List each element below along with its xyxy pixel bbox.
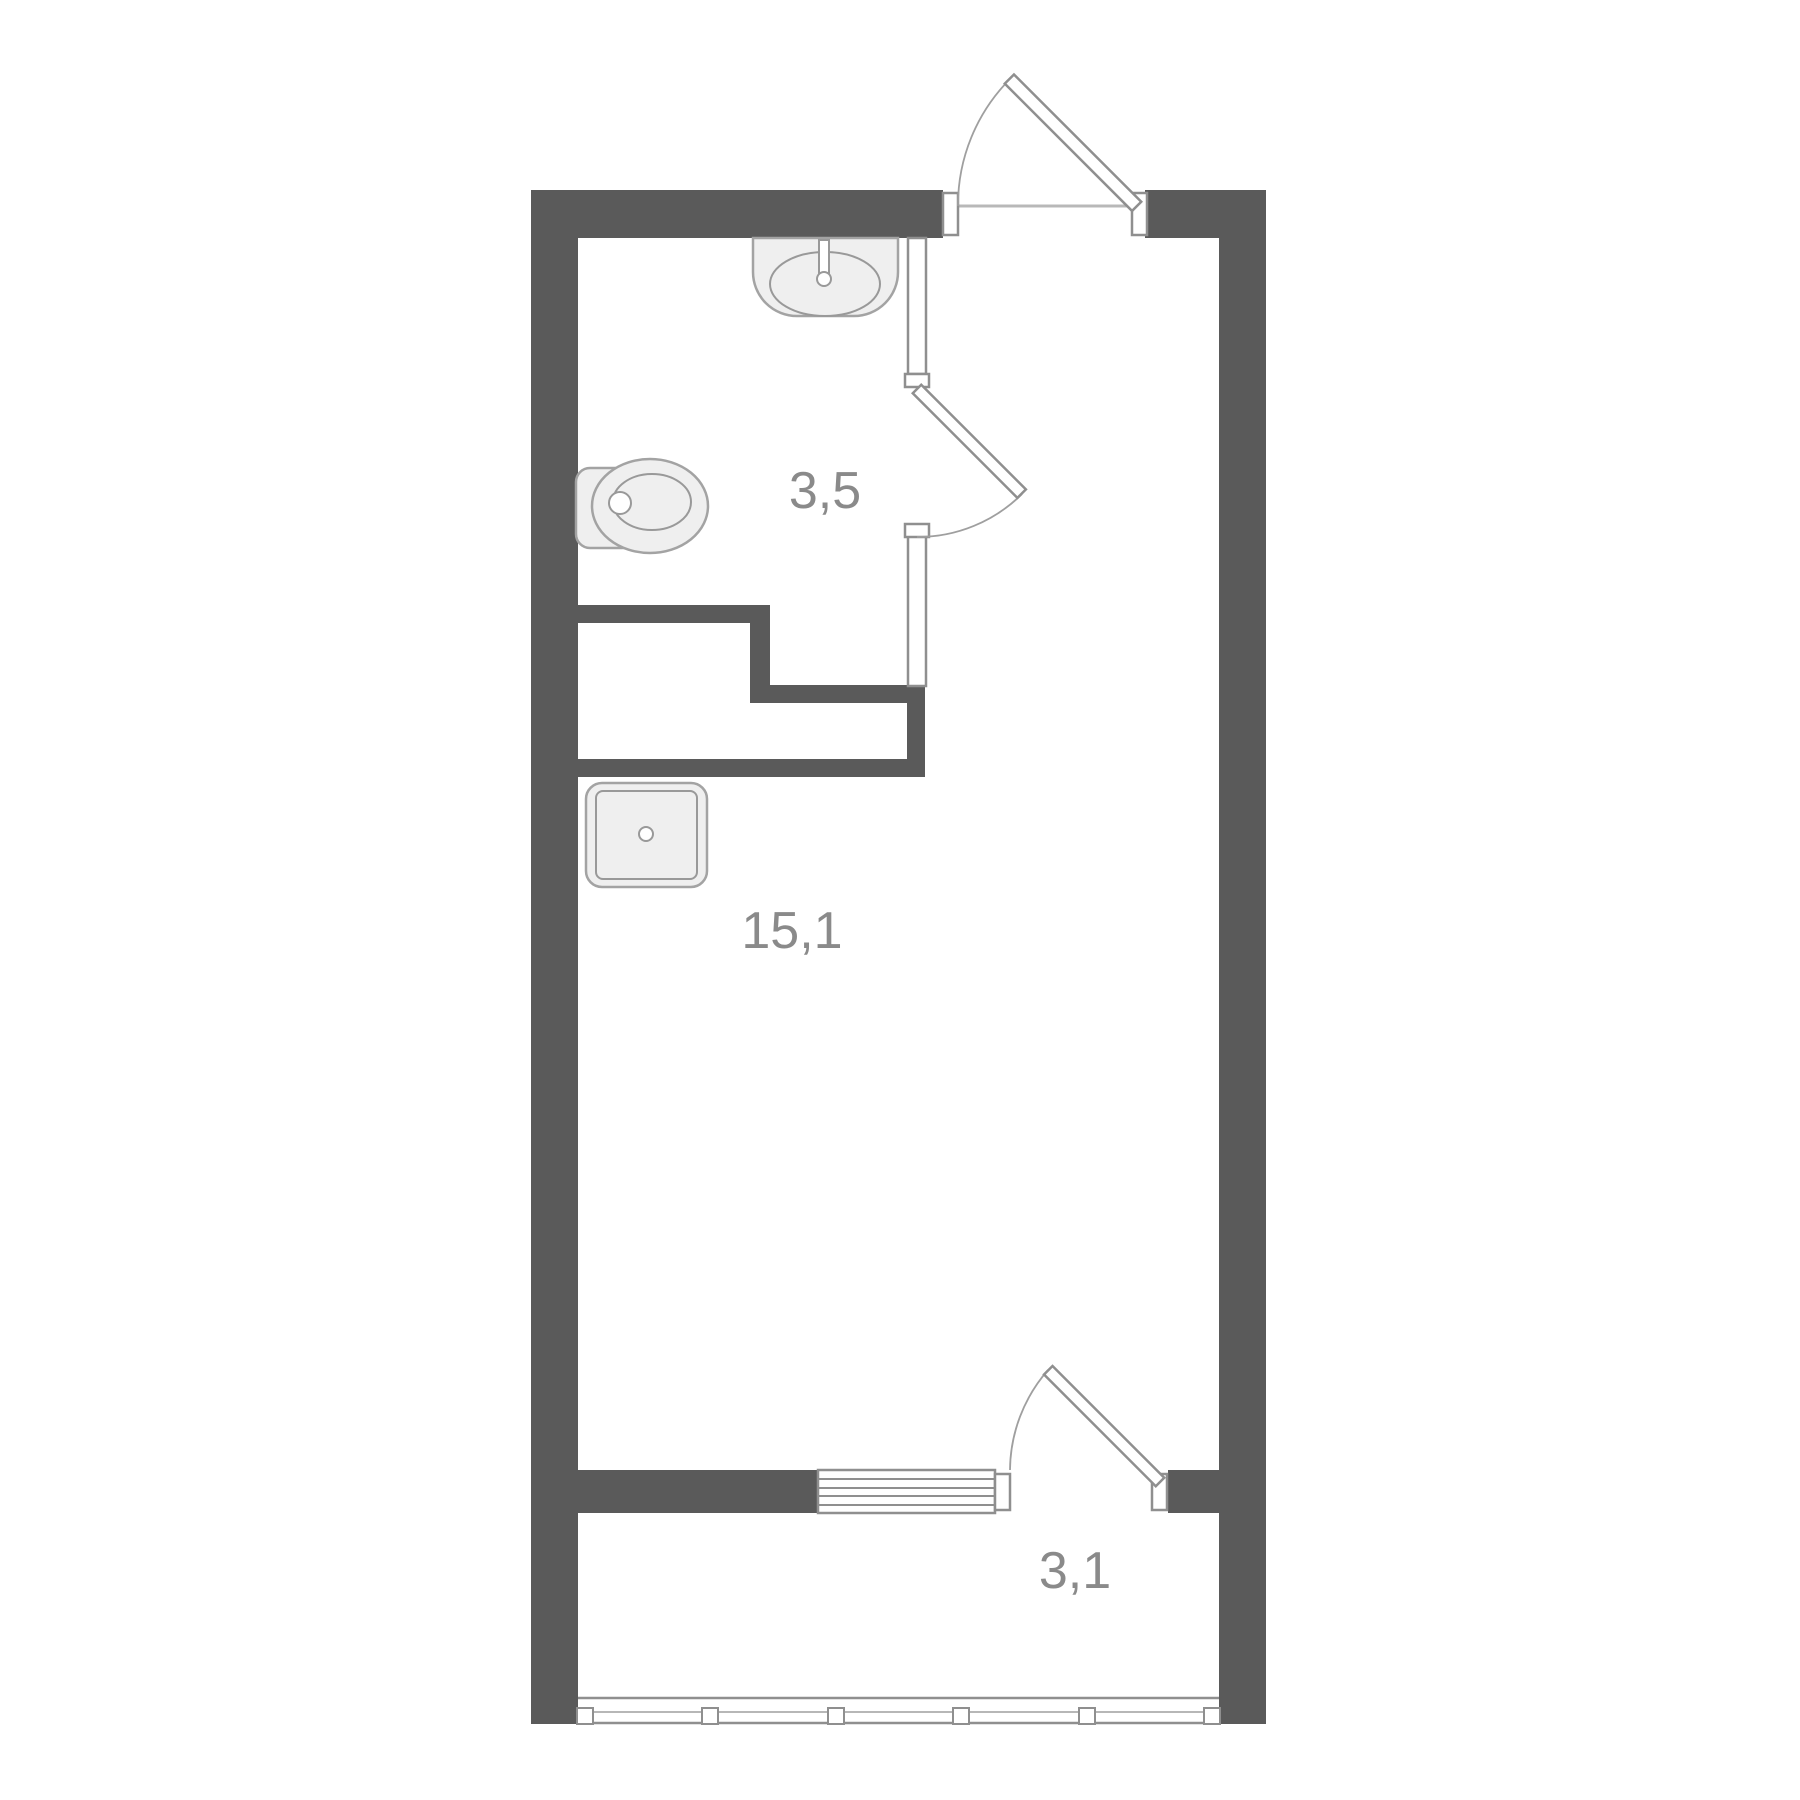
balcony-door-swing-arc [1010, 1370, 1048, 1470]
sink-faucet [819, 240, 829, 273]
radiator-icon [818, 1470, 995, 1513]
floor-plan: 3,5 15,1 3,1 [0, 0, 1800, 1800]
toilet-flush [609, 492, 631, 514]
entry-jamb-left [943, 193, 958, 235]
wall-niche-middle [750, 685, 925, 703]
wall-niche-bottom [578, 759, 925, 777]
entry-door-leaf [1005, 74, 1141, 210]
wall-niche-right [907, 685, 925, 777]
shower-drain [639, 827, 653, 841]
bathroom-area-label: 3,5 [789, 462, 861, 520]
wall-top-left [531, 190, 943, 238]
balcony-door-leaf [1044, 1366, 1164, 1486]
shower-tray-icon [586, 783, 707, 887]
balcony-jamb-left [995, 1474, 1010, 1510]
balcony-area-label: 3,1 [1039, 1542, 1111, 1600]
bathroom-door-swing-arc [917, 494, 1022, 537]
wall-right [1219, 190, 1266, 1724]
wall-balcony-stub [1168, 1470, 1219, 1513]
living-area-label: 15,1 [741, 902, 842, 960]
partition-lower-cap [905, 524, 929, 537]
partition-upper-cap [905, 374, 929, 387]
partition-lower [908, 536, 926, 686]
wall-niche-upper [578, 605, 770, 623]
partition-upper [908, 238, 926, 374]
wall-left [531, 190, 578, 1724]
sink-icon [753, 238, 898, 316]
entry-door [943, 74, 1147, 235]
wall-balcony-left [578, 1470, 818, 1513]
sink-faucet-tip [817, 272, 831, 286]
balcony-glazing [577, 1698, 1220, 1724]
balcony-door-group [818, 1366, 1167, 1513]
floor-plan-canvas: 3,5 15,1 3,1 [0, 0, 1800, 1800]
toilet-icon [576, 459, 708, 553]
entry-door-swing-arc [958, 79, 1010, 206]
bathroom-door-leaf [913, 385, 1026, 498]
bathroom-partition [905, 238, 1026, 686]
